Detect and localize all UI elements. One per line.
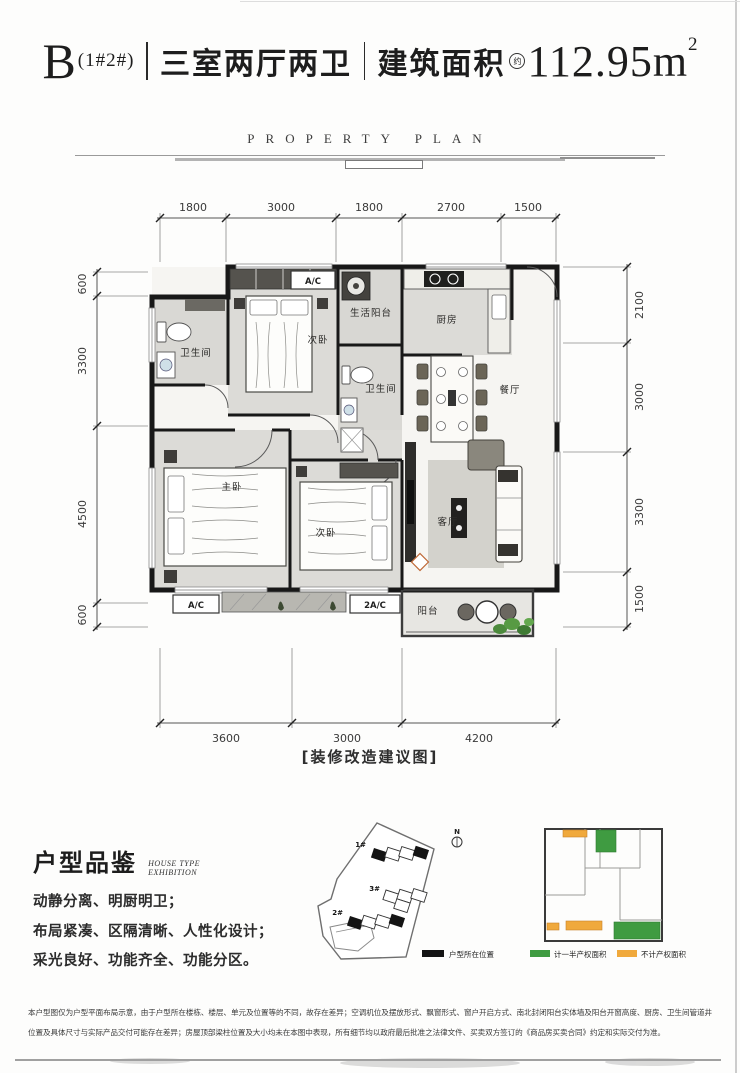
dim-top-2: 3000 xyxy=(267,201,295,214)
disclaimer: 本户型图仅为户型平面布局示意，由于户型所在楼栋、楼层、单元及位置等的不同，故存在… xyxy=(28,1003,712,1042)
nightstand xyxy=(296,466,307,477)
room-label-service-balcony: 生活阳台 xyxy=(350,307,392,319)
svg-text:N: N xyxy=(454,828,460,836)
ac-label-top: A/C xyxy=(305,277,321,287)
dim-bottom-3: 4200 xyxy=(465,732,493,745)
building-label-2: 2# xyxy=(332,909,343,917)
dim-right-3: 3300 xyxy=(633,498,646,526)
dim-left-1: 600 xyxy=(76,274,89,295)
disclaimer-line-1: 本户型图仅为户型平面布局示意，由于户型所在楼栋、楼层、单元及位置等的不同，故存在… xyxy=(28,1008,689,1017)
room-label-bedroom1: 次卧 xyxy=(307,334,328,346)
legend-swatch-location xyxy=(422,950,444,957)
room-label-living: 客厅 xyxy=(437,516,458,528)
legend-swatch-half-area xyxy=(530,950,550,957)
mini-plan: 计一半产权面积 不计产权面积 xyxy=(530,829,686,959)
kitchen-sink xyxy=(492,295,506,319)
stool xyxy=(500,604,516,620)
nightstand xyxy=(317,298,328,309)
room-label-bath1: 卫生间 xyxy=(180,347,212,359)
page-edge-top xyxy=(240,1,740,2)
dim-top-5: 1500 xyxy=(514,201,542,214)
room-label-bath2: 卫生间 xyxy=(365,383,397,395)
ac-label-right: 2A/C xyxy=(364,601,386,611)
dim-left-4: 600 xyxy=(76,605,89,626)
legend-label-half-area: 计一半产权面积 xyxy=(554,949,607,959)
dim-top-1: 1800 xyxy=(179,201,207,214)
building-label-1: 1# xyxy=(355,841,366,849)
feature-line: 采光良好、功能齐全、功能分区。 xyxy=(33,947,293,977)
nightstand xyxy=(164,450,177,463)
house-type-exhibition: 户型品鉴 HOUSE TYPE EXHIBITION 动静分离、明厨明卫； 布局… xyxy=(33,843,293,977)
feature-line: 布局紧凑、区隔清晰、人性化设计； xyxy=(33,918,293,948)
ac-label-left: A/C xyxy=(188,601,204,611)
page-edge-bottom xyxy=(15,1059,721,1061)
legend-swatch-excluded-area xyxy=(617,950,637,957)
legend-label-location: 户型所在位置 xyxy=(449,949,494,959)
nightstand xyxy=(234,298,245,309)
dim-right-1: 2100 xyxy=(633,291,646,319)
dim-top-4: 2700 xyxy=(437,201,465,214)
north-arrow-icon: N xyxy=(452,828,462,847)
dim-left-2: 3300 xyxy=(76,347,89,375)
dim-top-3: 1800 xyxy=(355,201,383,214)
dim-left-3: 4500 xyxy=(76,500,89,528)
dim-bottom-2: 3000 xyxy=(333,732,361,745)
room-label-master: 主卧 xyxy=(221,481,242,493)
building-label-3: 3# xyxy=(369,885,380,893)
legend-label-excluded-area: 不计产权面积 xyxy=(641,949,686,959)
room-label-kitchen: 厨房 xyxy=(436,314,457,326)
stool xyxy=(458,604,474,620)
site-map: 1# 3# 2# N 户型所在位置 xyxy=(318,823,494,959)
toilet xyxy=(342,366,350,384)
page-edge-right xyxy=(735,0,737,1073)
room-label-bedroom2: 次卧 xyxy=(315,527,336,539)
feature-line: 动静分离、明厨明卫； xyxy=(33,888,293,918)
balcony-table xyxy=(476,601,498,623)
dim-bottom-1: 3600 xyxy=(212,732,240,745)
room-label-dining: 餐厅 xyxy=(499,384,520,396)
nightstand xyxy=(164,570,177,583)
plan-caption: [装修改造建议图] xyxy=(0,746,740,767)
dim-right-4: 1500 xyxy=(633,585,646,613)
exhibition-title: 户型品鉴 xyxy=(33,843,137,878)
exhibition-subtitle: HOUSE TYPE EXHIBITION xyxy=(148,859,200,878)
dim-right-2: 3000 xyxy=(633,383,646,411)
planter xyxy=(222,592,346,612)
toilet xyxy=(157,322,166,342)
room-label-balcony: 阳台 xyxy=(417,605,438,617)
